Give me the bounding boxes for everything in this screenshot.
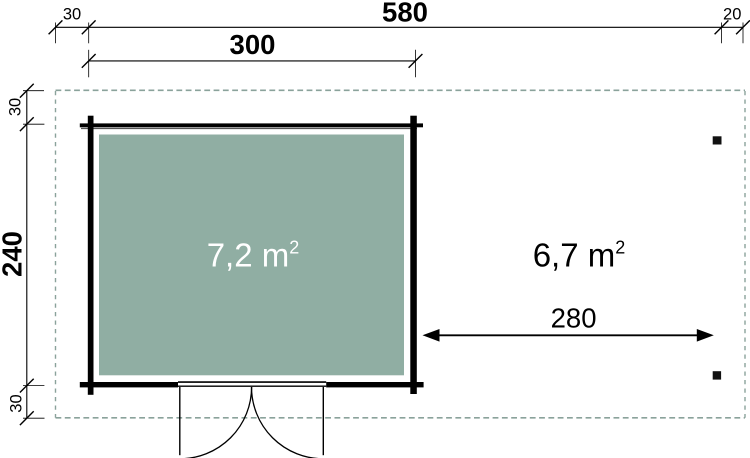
svg-text:30: 30 bbox=[7, 98, 25, 116]
svg-text:580: 580 bbox=[382, 0, 428, 27]
svg-text:300: 300 bbox=[230, 29, 276, 60]
svg-text:240: 240 bbox=[0, 231, 28, 277]
svg-text:7,2 m2: 7,2 m2 bbox=[207, 237, 300, 274]
svg-text:280: 280 bbox=[551, 302, 597, 333]
svg-text:20: 20 bbox=[723, 6, 741, 24]
svg-text:30: 30 bbox=[8, 394, 26, 412]
svg-text:6,7 m2: 6,7 m2 bbox=[533, 237, 626, 274]
svg-text:30: 30 bbox=[63, 6, 81, 24]
